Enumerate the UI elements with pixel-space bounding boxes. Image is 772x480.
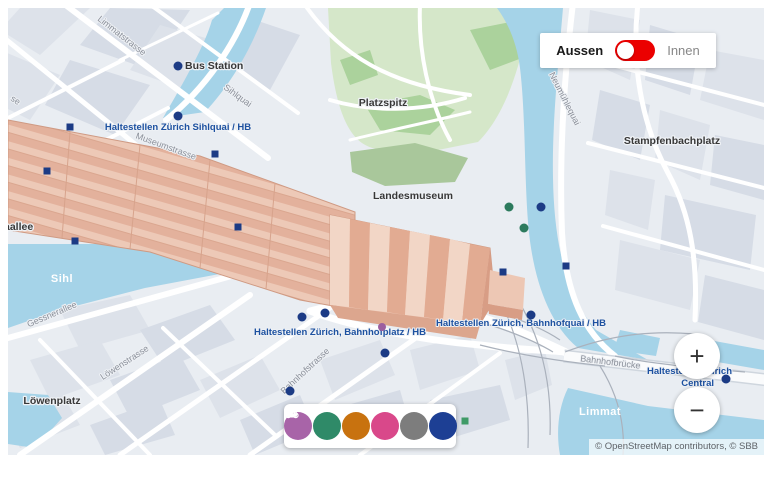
- elevator-icon: [284, 404, 300, 420]
- indoor-outdoor-toggle[interactable]: [615, 40, 655, 61]
- toggle-label-aussen: Aussen: [556, 43, 603, 58]
- poi-marker-purple[interactable]: [378, 323, 386, 331]
- stop-marker[interactable]: [174, 62, 183, 71]
- view-toggle-card: Aussen Innen: [540, 33, 716, 68]
- filter-shopping-button[interactable]: [371, 412, 399, 440]
- place-label-europaallee-partial: aallee: [8, 221, 33, 233]
- stop-marker[interactable]: [286, 387, 295, 396]
- poi-marker-green[interactable]: [505, 203, 514, 212]
- map-viewport[interactable]: Limmatstrasse Sihlquai Museumstrasse Neu…: [8, 8, 764, 455]
- stop-marker[interactable]: [298, 313, 307, 322]
- stop-marker[interactable]: [321, 309, 330, 318]
- place-label-loewenplatz: Löwenplatz: [23, 395, 80, 407]
- toggle-label-innen: Innen: [667, 43, 700, 58]
- poi-marker-square[interactable]: [235, 224, 242, 231]
- poi-marker-square[interactable]: [563, 263, 570, 270]
- stop-marker[interactable]: [381, 349, 390, 358]
- place-label-platzspitz: Platzspitz: [359, 97, 407, 109]
- transit-label-bahnhofplatz: Haltestellen Zürich, Bahnhofplatz / HB: [254, 327, 426, 338]
- stop-marker[interactable]: [722, 375, 731, 384]
- map-attribution: © OpenStreetMap contributors, © SBB: [589, 439, 764, 455]
- water-label-limmat: Limmat: [579, 406, 621, 418]
- zoom-out-button[interactable]: −: [674, 387, 720, 433]
- place-label-stampfenbachplatz: Stampfenbachplatz: [624, 135, 720, 147]
- water-label-sihl: Sihl: [51, 273, 73, 285]
- filter-lockers-button[interactable]: [400, 412, 428, 440]
- filter-restaurants-button[interactable]: [342, 412, 370, 440]
- stop-marker[interactable]: [174, 112, 183, 121]
- poi-marker-square[interactable]: [67, 124, 74, 131]
- transit-label-sihlquai: Haltestellen Zürich Sihlquai / HB: [105, 122, 251, 133]
- place-label-landesmuseum: Landesmuseum: [373, 190, 453, 202]
- park-platzspitz: [305, 8, 530, 186]
- poi-marker-square[interactable]: [72, 238, 79, 245]
- filter-mobility-button[interactable]: [313, 412, 341, 440]
- zoom-in-button[interactable]: +: [674, 333, 720, 379]
- poi-marker-square[interactable]: [212, 151, 219, 158]
- poi-marker-square-green[interactable]: [462, 418, 469, 425]
- stop-marker[interactable]: [537, 203, 546, 212]
- map-canvas[interactable]: Limmatstrasse Sihlquai Museumstrasse Neu…: [8, 8, 764, 455]
- transit-label-bahnhofquai: Haltestellen Zürich, Bahnhofquai / HB: [436, 318, 606, 329]
- poi-marker-green[interactable]: [520, 224, 529, 233]
- place-label-bus-station: Bus Station: [185, 60, 243, 72]
- street-label: Sihlquai: [222, 82, 254, 109]
- filter-elevators-button[interactable]: [429, 412, 457, 440]
- poi-marker-square[interactable]: [500, 269, 507, 276]
- toggle-knob: [617, 42, 634, 59]
- landesmuseum-building: [350, 143, 468, 186]
- stop-marker[interactable]: [527, 311, 536, 320]
- poi-filter-bar: [284, 404, 456, 448]
- poi-marker-square[interactable]: [44, 168, 51, 175]
